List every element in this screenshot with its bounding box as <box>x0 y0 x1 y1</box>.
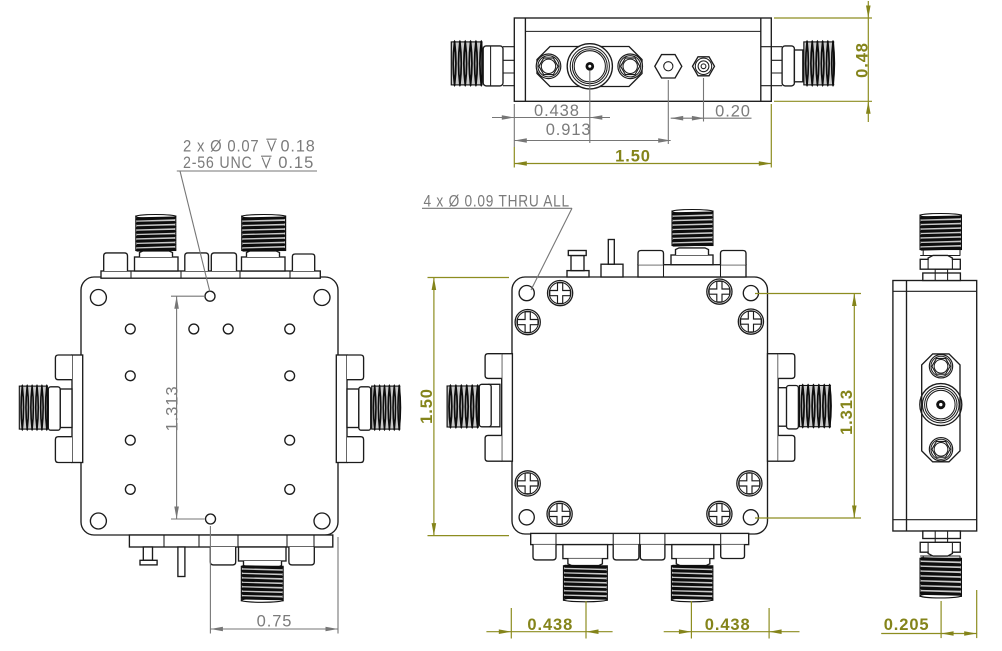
svg-text:0.438: 0.438 <box>705 616 751 634</box>
svg-text:0.75: 0.75 <box>257 613 293 631</box>
svg-text:1.313: 1.313 <box>838 389 856 435</box>
svg-text:2-56 UNC: 2-56 UNC <box>183 154 253 172</box>
svg-text:1.50: 1.50 <box>418 388 436 424</box>
svg-text:1.313: 1.313 <box>164 386 182 432</box>
svg-text:0.48: 0.48 <box>854 42 872 78</box>
svg-text:0.205: 0.205 <box>884 616 930 634</box>
svg-text:0.438: 0.438 <box>534 102 580 120</box>
svg-text:2 x Ø 0.07: 2 x Ø 0.07 <box>183 137 260 155</box>
svg-text:0.913: 0.913 <box>546 121 592 139</box>
svg-text:4 x Ø 0.09 THRU ALL: 4 x Ø 0.09 THRU ALL <box>424 192 570 210</box>
svg-text:0.20: 0.20 <box>715 103 751 121</box>
svg-text:0.15: 0.15 <box>278 154 314 172</box>
svg-text:0.438: 0.438 <box>527 616 573 634</box>
svg-text:1.50: 1.50 <box>615 147 651 165</box>
svg-text:0.18: 0.18 <box>281 137 316 155</box>
